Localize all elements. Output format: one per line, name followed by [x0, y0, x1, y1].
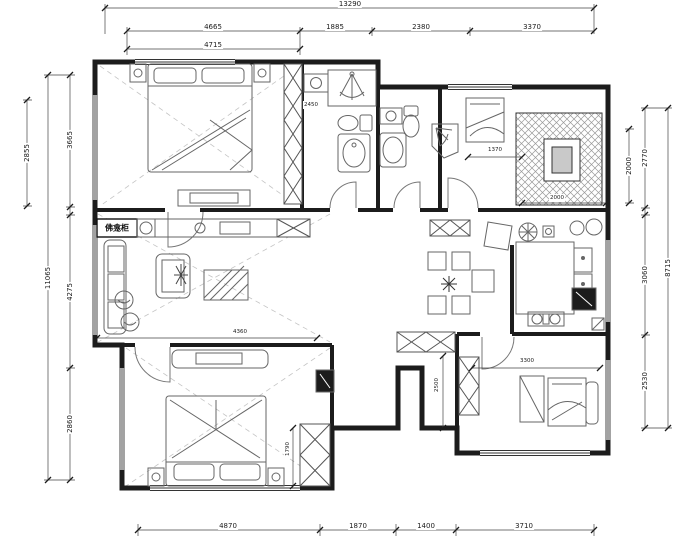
dim-interior-living: 4360	[232, 328, 248, 336]
shower-icon	[328, 70, 376, 106]
vanity-sink-icon	[380, 108, 402, 124]
dim-right-inner: 2000	[625, 156, 633, 176]
corner-unit	[592, 318, 604, 330]
bench-bed-icon	[466, 98, 504, 142]
storage-hatched	[516, 113, 602, 205]
closet-corridor	[397, 332, 455, 352]
plant-icon	[441, 276, 457, 292]
dim-interior-niche: 1370	[487, 146, 503, 154]
tv-cabinet	[155, 219, 277, 237]
dim-top-seg-1: 4665	[203, 23, 223, 31]
round-fixture	[137, 219, 155, 237]
nightstand	[148, 468, 164, 486]
dim-top-seg-3: 2380	[411, 23, 431, 31]
dim-bottom-seg-2: 1870	[348, 522, 368, 530]
wardrobe-bedroom2	[300, 424, 330, 486]
dim-interior-hall: 2500	[433, 377, 441, 393]
dim-right-seg-1: 2770	[641, 148, 649, 168]
closet-door	[520, 376, 544, 422]
cabinet-kitchen-x	[430, 220, 470, 236]
washbasin-icon	[338, 134, 370, 172]
dresser-bedroom2	[172, 350, 268, 368]
plant-icon	[174, 264, 188, 286]
dim-interior-storage: 2000	[549, 194, 565, 202]
dim-top-seg-4: 3370	[522, 23, 542, 31]
dim-left-seg-3: 2860	[66, 414, 74, 434]
dim-bottom-seg-4: 3710	[514, 522, 534, 530]
tv-stand-dining	[484, 222, 512, 250]
kitchen-fixtures	[516, 219, 604, 330]
vanity-sink-icon	[304, 74, 328, 92]
toilet-icon	[403, 106, 419, 137]
nightstand	[268, 468, 284, 486]
dim-right-seg-2: 3060	[641, 265, 649, 285]
bed-bedroom2	[166, 396, 266, 486]
bathroom1-fixtures	[304, 70, 376, 172]
wardrobe-bedroom3	[459, 357, 479, 415]
bed-bedroom3	[548, 378, 598, 426]
bed-bedroom1	[148, 64, 252, 172]
utility-room	[432, 98, 602, 205]
bedroom3-furniture	[520, 376, 598, 426]
dim-left-overall: 11065	[44, 266, 52, 290]
washbasin-icon	[380, 133, 406, 167]
fridge-icon	[572, 288, 596, 310]
dim-interior-bedroom3: 3300	[519, 357, 535, 365]
cabinet-living-x	[277, 219, 310, 237]
toilet-icon	[338, 115, 372, 131]
wardrobe-bedroom1	[284, 64, 302, 204]
armchair	[156, 254, 190, 298]
dim-left-seg-1: 3665	[66, 130, 74, 150]
dim-bottom-seg-1: 4870	[218, 522, 238, 530]
dim-top-overall: 13290	[338, 0, 362, 8]
kitchen-island	[516, 242, 574, 314]
living-room-furniture	[97, 219, 277, 334]
dim-right-seg-3: 2530	[641, 371, 649, 391]
dim-left-seg-2: 4275	[66, 282, 74, 302]
dim-interior-closet: 2450	[303, 101, 319, 109]
sofa	[104, 240, 126, 334]
double-sink-icon	[570, 219, 602, 235]
exhaust-fan-icon	[519, 223, 537, 241]
dim-left-room: 2855	[23, 143, 31, 163]
floor-plan-canvas: 13290 4665 1885 2380 3370 4715 2855 1106…	[0, 0, 700, 548]
black-cabinet	[316, 370, 334, 392]
floor-plan-drawing	[0, 0, 700, 548]
dresser-bedroom1	[178, 190, 250, 206]
corner-shower-icon	[432, 124, 458, 158]
dim-bottom-seg-3: 1400	[416, 522, 436, 530]
nightstand	[130, 64, 146, 82]
bathroom2-fixtures	[380, 106, 419, 167]
dim-top-seg-2: 1885	[325, 23, 345, 31]
dim-top-sub: 4715	[203, 41, 223, 49]
dim-interior-wardrobe: 1790	[284, 441, 292, 457]
buddha-cabinet-label: 佛龛柜	[105, 223, 129, 234]
nightstand	[254, 64, 270, 82]
appliance-icon	[543, 226, 554, 237]
dim-right-overall: 8715	[664, 258, 672, 278]
